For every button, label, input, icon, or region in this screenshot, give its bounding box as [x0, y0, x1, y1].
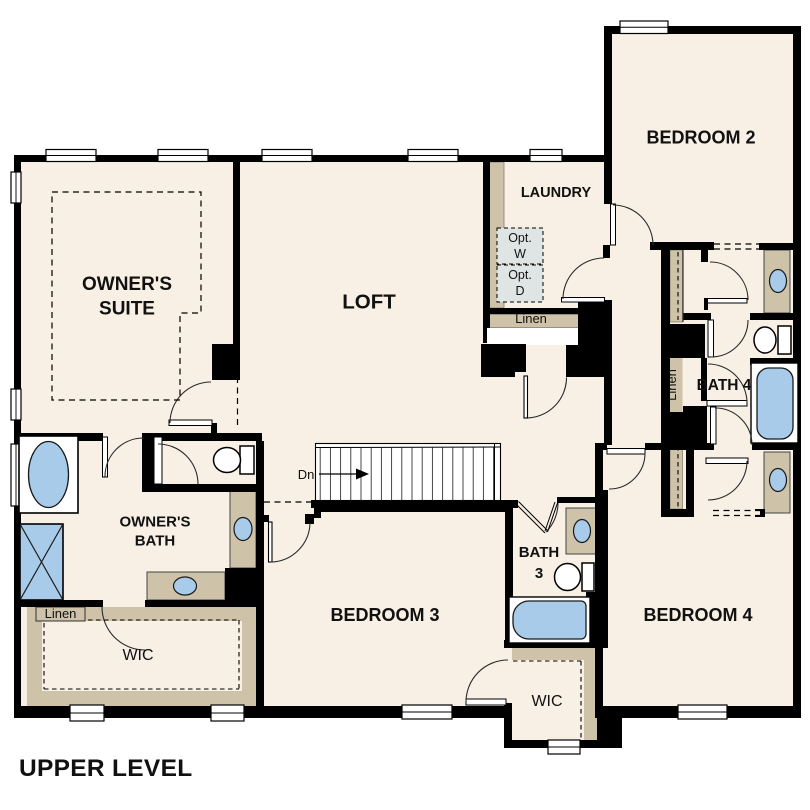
svg-text:BEDROOM 3: BEDROOM 3 — [330, 605, 439, 625]
svg-text:SUITE: SUITE — [99, 299, 155, 320]
svg-text:UPPER LEVEL: UPPER LEVEL — [19, 755, 192, 782]
svg-text:Dn: Dn — [298, 467, 315, 482]
svg-text:3: 3 — [535, 565, 543, 582]
svg-text:LOFT: LOFT — [342, 291, 396, 314]
svg-text:WIC: WIC — [531, 693, 562, 710]
svg-text:Opt.: Opt. — [508, 231, 532, 245]
svg-text:Linen: Linen — [45, 606, 77, 621]
svg-text:LAUNDRY: LAUNDRY — [521, 185, 592, 201]
svg-text:BATH 4: BATH 4 — [697, 377, 752, 394]
svg-text:Linen: Linen — [664, 369, 679, 401]
svg-text:Linen: Linen — [515, 311, 547, 326]
svg-text:W: W — [514, 247, 526, 261]
svg-text:BEDROOM 4: BEDROOM 4 — [643, 605, 752, 625]
svg-text:BATH: BATH — [135, 533, 176, 550]
svg-text:D: D — [515, 284, 524, 298]
svg-text:BATH: BATH — [519, 544, 560, 561]
svg-text:Opt.: Opt. — [508, 268, 532, 282]
svg-text:WIC: WIC — [122, 647, 153, 664]
svg-text:OWNER'S: OWNER'S — [119, 514, 190, 531]
svg-text:BEDROOM 2: BEDROOM 2 — [646, 128, 755, 148]
svg-text:OWNER'S: OWNER'S — [82, 274, 172, 295]
